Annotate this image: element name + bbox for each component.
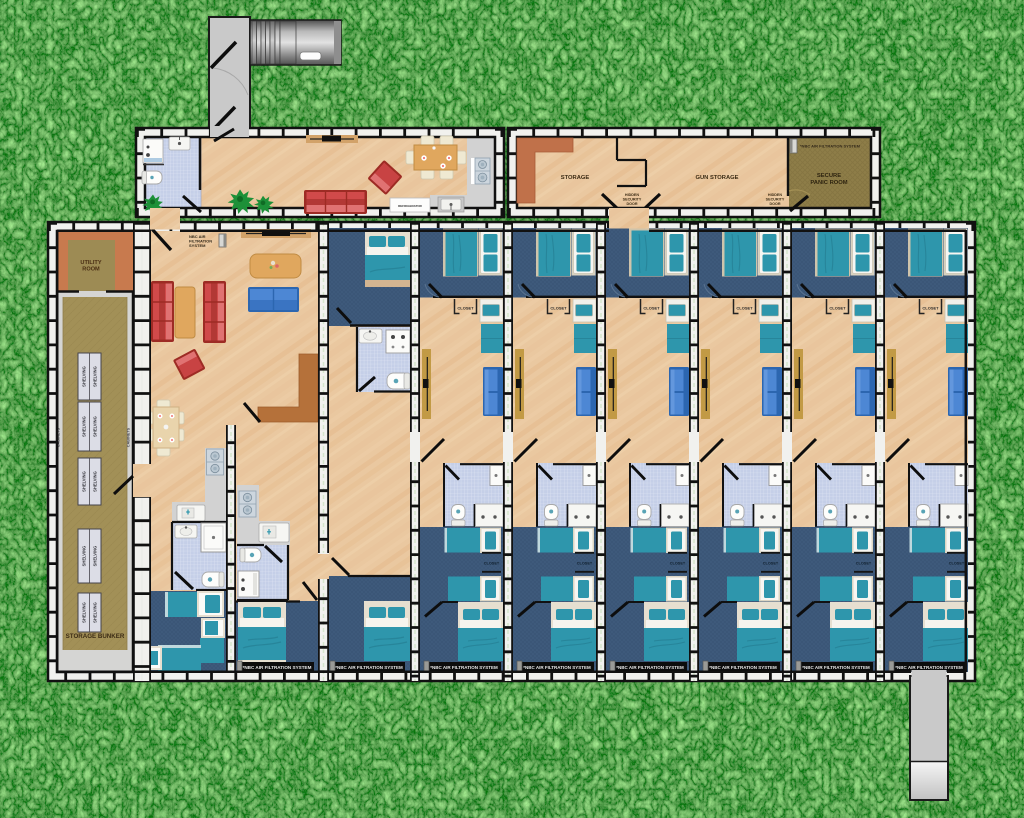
svg-text:CLOSET: CLOSET xyxy=(550,306,567,311)
svg-text:CLOSET: CLOSET xyxy=(922,306,939,311)
svg-text:SECURE: SECURE xyxy=(817,173,841,179)
svg-text:SHELVING: SHELVING xyxy=(93,546,98,567)
svg-text:SYSTEM: SYSTEM xyxy=(189,243,206,248)
svg-text:SHELVING: SHELVING xyxy=(82,416,87,437)
svg-text:SHELVING: SHELVING xyxy=(93,602,98,623)
svg-text:CLOSET: CLOSET xyxy=(829,306,846,311)
svg-text:*NBC AIR FILTRATION SYSTEM: *NBC AIR FILTRATION SYSTEM xyxy=(430,665,498,670)
svg-text:UTILITY: UTILITY xyxy=(80,260,101,266)
svg-text:CLOSET: CLOSET xyxy=(457,306,474,311)
svg-text:SECURITY: SECURITY xyxy=(623,198,642,202)
svg-text:CLOSET: CLOSET xyxy=(670,562,686,566)
svg-text:CLOSET: CLOSET xyxy=(763,562,779,566)
svg-text:ROOM: ROOM xyxy=(82,267,100,273)
svg-text:SECURITY: SECURITY xyxy=(766,198,785,202)
svg-text:CLOSET: CLOSET xyxy=(484,562,500,566)
svg-text:SHELVING: SHELVING xyxy=(82,366,87,387)
svg-text:CLOSET: CLOSET xyxy=(856,562,872,566)
svg-text:*NBC AIR FILTRATION SYSTEM: *NBC AIR FILTRATION SYSTEM xyxy=(709,665,777,670)
svg-text:REFRIGERATOR: REFRIGERATOR xyxy=(398,204,423,208)
svg-text:DOOR: DOOR xyxy=(769,202,780,206)
svg-text:PANIC ROOM: PANIC ROOM xyxy=(810,180,847,186)
svg-text:GUN STORAGE: GUN STORAGE xyxy=(695,175,738,181)
svg-text:CLOSET: CLOSET xyxy=(736,306,753,311)
svg-text:STORAGE BUNKER: STORAGE BUNKER xyxy=(66,633,125,640)
svg-text:DOOR: DOOR xyxy=(626,202,637,206)
svg-text:SHELVING: SHELVING xyxy=(93,416,98,437)
svg-text:HIDDEN: HIDDEN xyxy=(768,193,782,197)
svg-text:CLOSET: CLOSET xyxy=(577,562,593,566)
svg-text:*NBC AIR FILTRATION SYSTEM: *NBC AIR FILTRATION SYSTEM xyxy=(800,144,861,149)
svg-text:CLOSET: CLOSET xyxy=(949,562,965,566)
svg-text:SHELVING: SHELVING xyxy=(82,471,87,492)
svg-text:SHELVING: SHELVING xyxy=(93,366,98,387)
svg-text:*NBC AIR FILTRATION SYSTEM: *NBC AIR FILTRATION SYSTEM xyxy=(616,665,684,670)
svg-text:SHELVING: SHELVING xyxy=(93,471,98,492)
svg-text:*NBC AIR FILTRATION SYSTEM: *NBC AIR FILTRATION SYSTEM xyxy=(802,665,870,670)
svg-text:*NBC AIR FILTRATION SYSTEM: *NBC AIR FILTRATION SYSTEM xyxy=(895,665,963,670)
svg-text:HIDDEN: HIDDEN xyxy=(625,193,639,197)
svg-text:SHELVING: SHELVING xyxy=(82,602,87,623)
svg-text:*NBC AIR FILTRATION SYSTEM: *NBC AIR FILTRATION SYSTEM xyxy=(523,665,591,670)
svg-text:CABINETS: CABINETS xyxy=(127,427,131,447)
svg-text:SHELVING: SHELVING xyxy=(82,546,87,567)
svg-text:*NBC AIR FILTRATION SYSTEM: *NBC AIR FILTRATION SYSTEM xyxy=(243,665,312,670)
svg-text:STORAGE: STORAGE xyxy=(561,175,590,181)
svg-text:*NBC AIR FILTRATION SYSTEM: *NBC AIR FILTRATION SYSTEM xyxy=(335,665,403,670)
svg-text:CLOSET: CLOSET xyxy=(643,306,660,311)
